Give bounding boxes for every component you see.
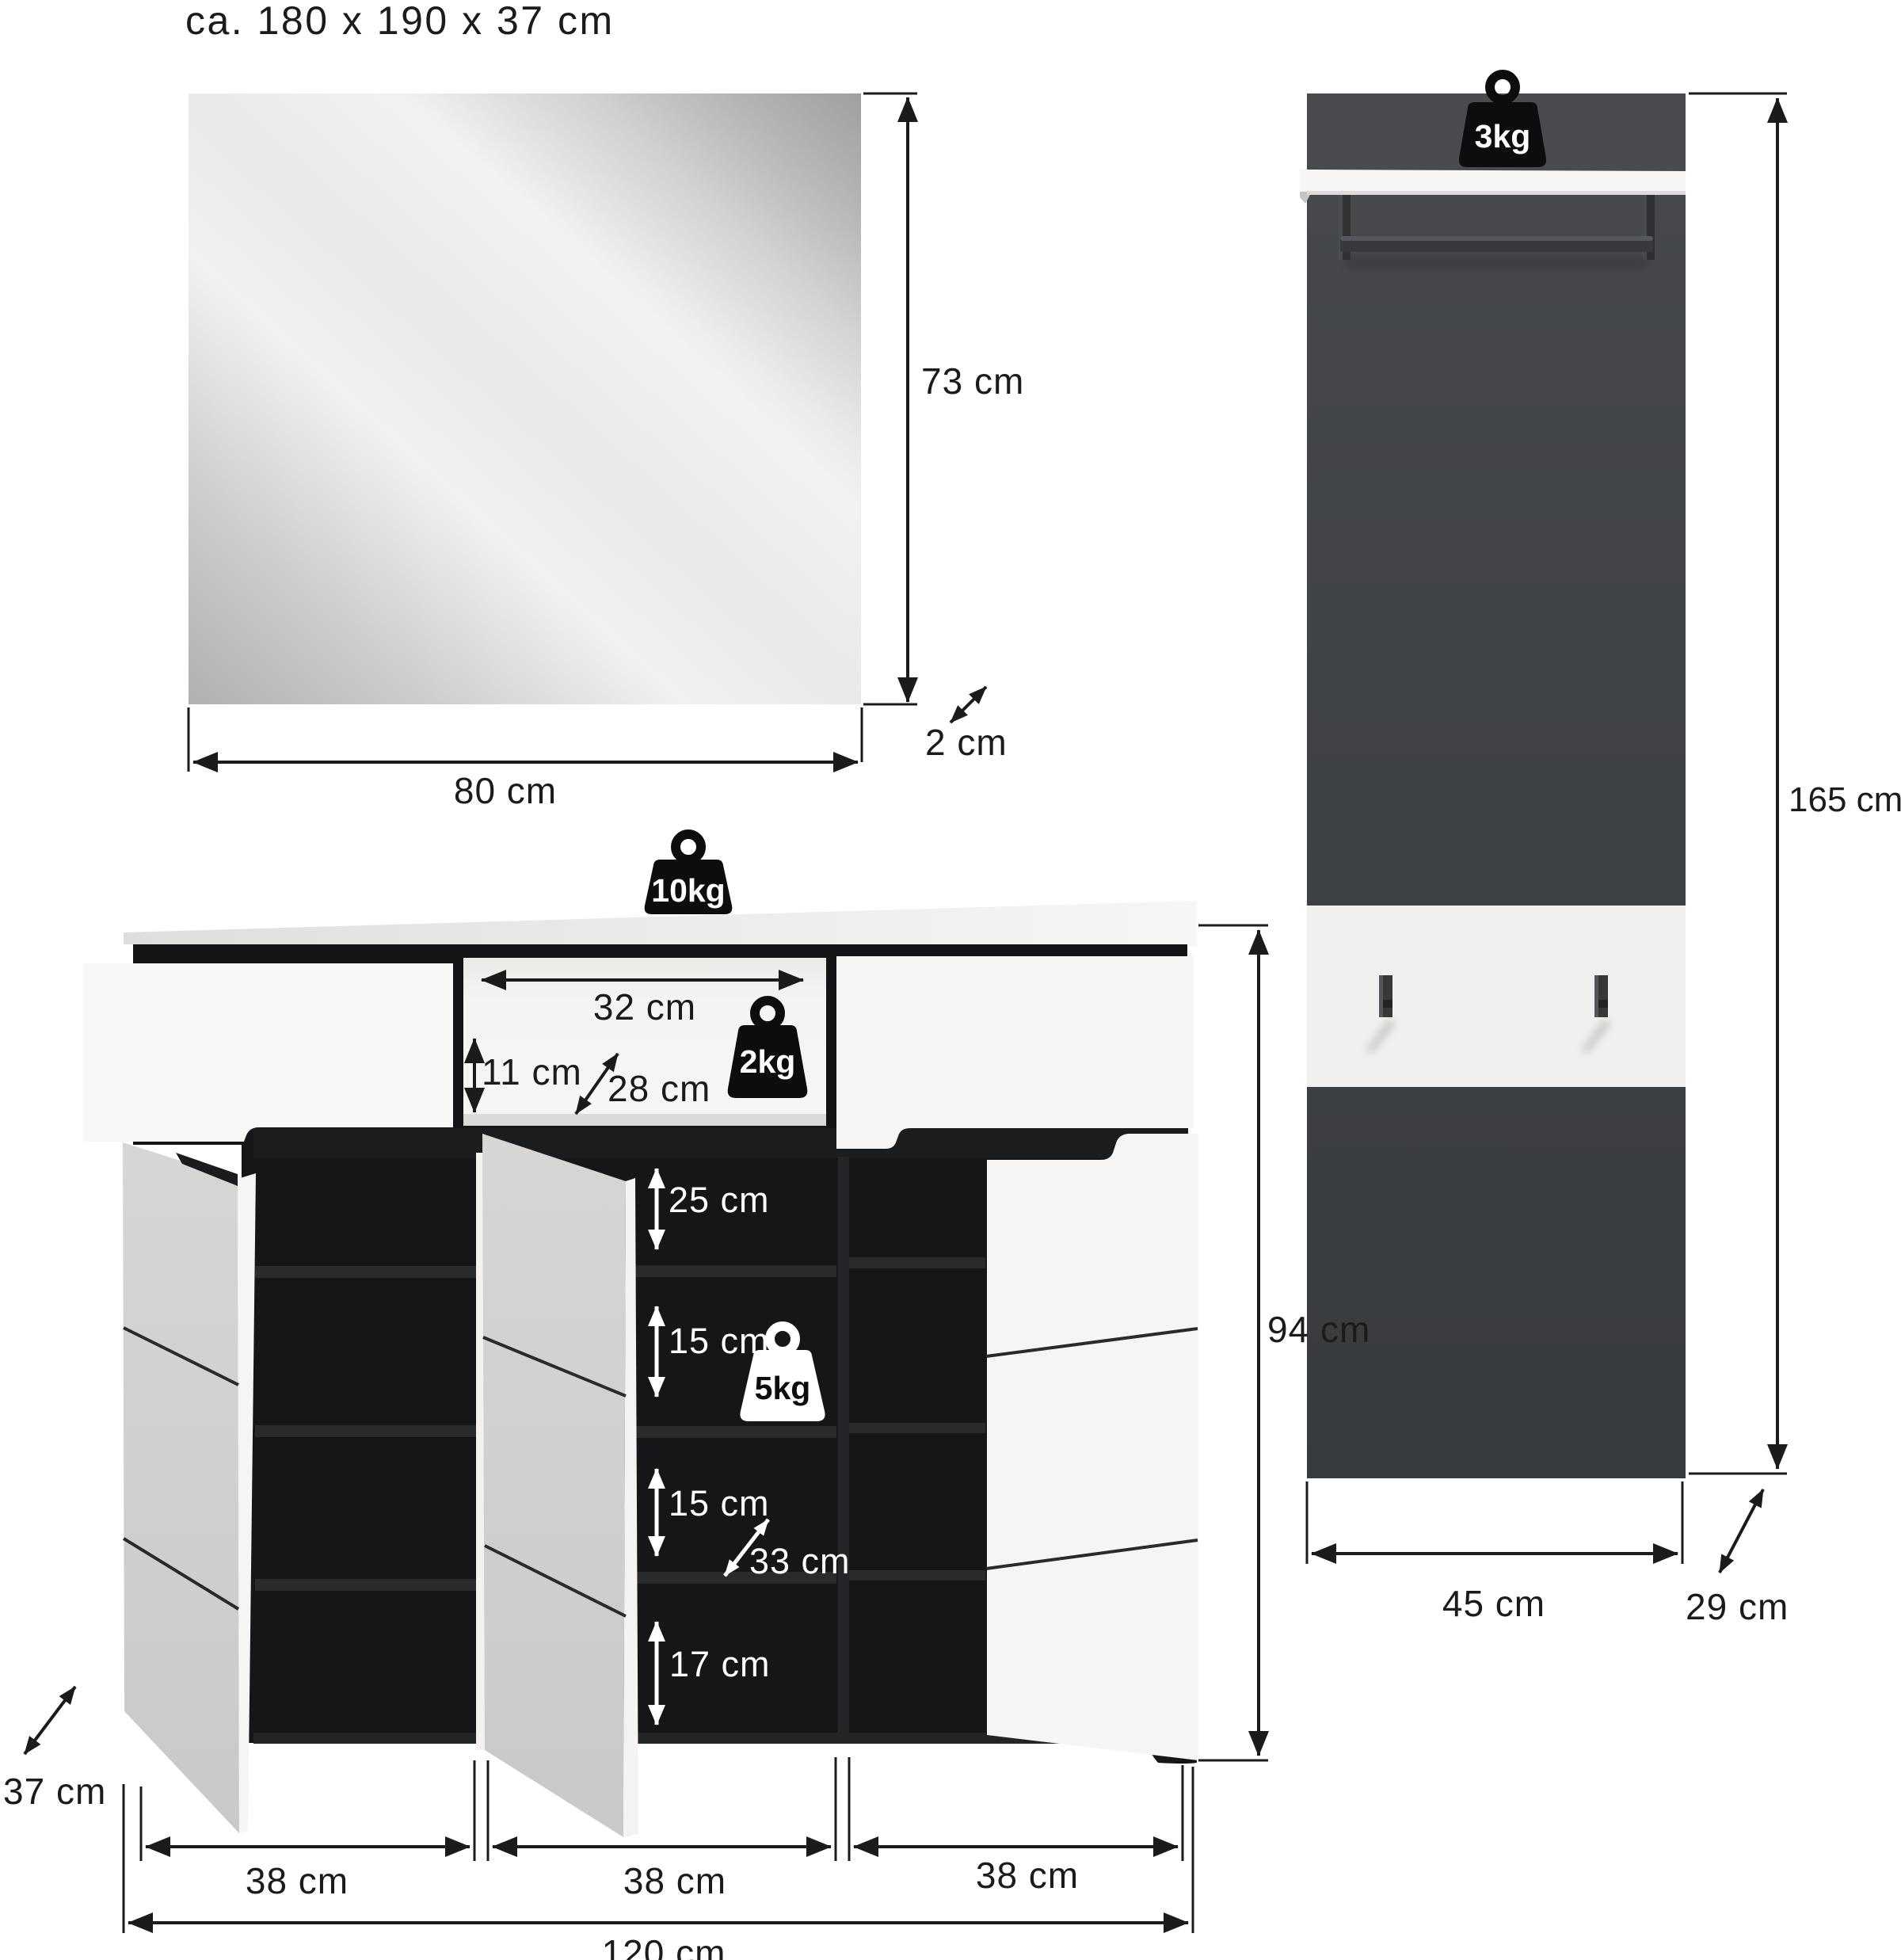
svg-text:ca. 180 x 190 x 37 cm: ca. 180 x 190 x 37 cm — [185, 0, 615, 43]
svg-text:10kg: 10kg — [651, 872, 725, 909]
svg-text:45 cm: 45 cm — [1442, 1583, 1545, 1624]
svg-text:2 cm: 2 cm — [925, 722, 1008, 763]
svg-text:28 cm: 28 cm — [608, 1068, 710, 1109]
svg-text:25 cm: 25 cm — [669, 1180, 770, 1220]
svg-text:120 cm: 120 cm — [602, 1932, 726, 1960]
svg-text:38 cm: 38 cm — [623, 1860, 726, 1901]
svg-text:165 cm: 165 cm — [1789, 780, 1901, 819]
svg-text:37 cm: 37 cm — [3, 1771, 106, 1812]
svg-text:94 cm: 94 cm — [1267, 1309, 1370, 1350]
svg-text:3kg: 3kg — [1475, 118, 1531, 154]
svg-text:11 cm: 11 cm — [482, 1051, 582, 1092]
svg-text:17 cm: 17 cm — [669, 1644, 771, 1684]
svg-text:32 cm: 32 cm — [593, 986, 696, 1028]
svg-text:5kg: 5kg — [755, 1370, 811, 1406]
svg-text:15 cm: 15 cm — [669, 1483, 770, 1523]
svg-text:38 cm: 38 cm — [246, 1860, 349, 1901]
svg-text:2kg: 2kg — [740, 1043, 796, 1080]
svg-text:29 cm: 29 cm — [1686, 1586, 1789, 1627]
svg-text:73 cm: 73 cm — [921, 360, 1024, 402]
svg-text:33 cm: 33 cm — [749, 1541, 851, 1581]
svg-text:38 cm: 38 cm — [976, 1855, 1079, 1896]
svg-text:80 cm: 80 cm — [454, 770, 557, 811]
